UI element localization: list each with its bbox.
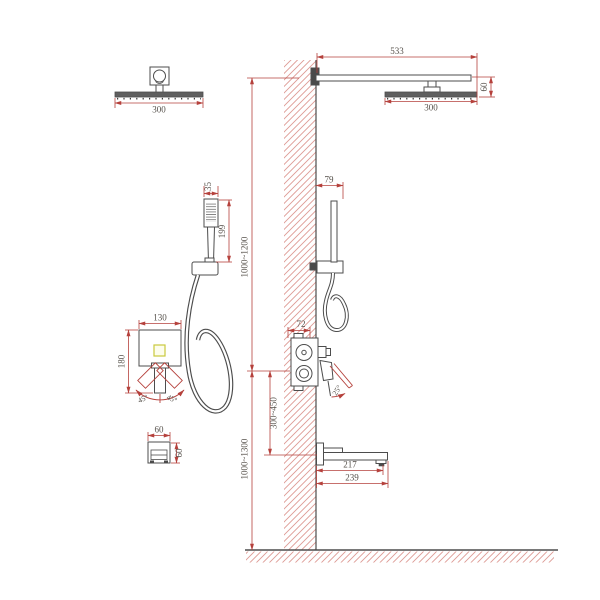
outlet-foot-left xyxy=(150,461,154,464)
hand-shower-wand-side xyxy=(331,201,337,262)
wall-hatch xyxy=(284,60,316,550)
shower-holder xyxy=(192,262,218,275)
dim-outlet-height: 60 xyxy=(174,448,184,458)
shower-installation-diagram: 300 533 60 300 35 xyxy=(0,0,600,600)
floor-section xyxy=(245,550,558,563)
head-connector-base xyxy=(424,87,440,92)
dim-arm-above-mixer: 1000~1200 xyxy=(240,236,250,277)
lever-side xyxy=(320,361,333,381)
mixer-side-view: 25° 72 xyxy=(288,319,353,397)
dim-rain-head-front-width: 300 xyxy=(152,105,166,115)
lever-tip-line xyxy=(328,381,331,396)
floor-hatch xyxy=(246,552,554,563)
dim-swing-right: 45° xyxy=(165,392,178,404)
wall-section xyxy=(284,60,316,550)
dim-head-drop: 60 xyxy=(479,82,489,92)
hose-inner xyxy=(187,275,231,411)
shower-head-bar xyxy=(115,92,203,97)
technical-drawing-canvas: 300 533 60 300 35 xyxy=(0,0,600,600)
dim-hand-wall-offset: 79 xyxy=(325,175,335,185)
hand-shower-front-view: 35 199 xyxy=(187,182,232,412)
hand-shower-handle xyxy=(208,227,215,262)
dim-arm-length: 533 xyxy=(390,46,404,56)
dim-hand-length: 199 xyxy=(217,224,227,238)
spray-grille xyxy=(206,202,216,222)
dim-recess-depth: 72 xyxy=(297,319,306,329)
mixer-front-view: 45° 45° 130 180 xyxy=(117,313,185,405)
dim-rain-head-side-width: 300 xyxy=(424,103,438,113)
dim-swing-left: 45° xyxy=(136,392,149,404)
diverter-knob-tip xyxy=(326,349,331,356)
dim-spout-reach: 217 xyxy=(343,460,357,470)
shower-head-bar-side xyxy=(385,92,477,97)
arm-socket-circle xyxy=(154,70,166,82)
dim-outlet-width: 60 xyxy=(155,425,165,435)
valve-port-top-center xyxy=(302,350,306,354)
dim-mixer-above-floor: 1000~1300 xyxy=(240,438,250,479)
mixer-handle xyxy=(155,368,166,393)
valve-port-bottom-center xyxy=(300,369,309,378)
dim-spout-total: 239 xyxy=(345,473,359,483)
spout-outlet xyxy=(376,460,386,464)
holder-wall-plug xyxy=(310,263,317,270)
rain-shower-side-view: 533 60 300 xyxy=(311,46,495,113)
outlet-foot-right xyxy=(164,461,168,464)
shower-arm xyxy=(316,75,471,81)
diverter-knob-side xyxy=(318,347,326,358)
dim-plate-width: 130 xyxy=(153,313,167,323)
spout-wall-flange xyxy=(317,443,324,465)
dim-mixer-above-spout: 300~450 xyxy=(269,397,279,429)
dim-hand-head-width: 35 xyxy=(203,182,213,192)
head-connector-top xyxy=(428,81,436,87)
dim-plate-height: 180 xyxy=(117,354,127,368)
mixer-tab-bottom xyxy=(294,386,303,391)
mixer-tab-top xyxy=(294,334,303,339)
diverter-button xyxy=(154,345,165,356)
tub-spout-side-view: 217 239 xyxy=(317,443,389,488)
holder-side xyxy=(317,261,343,273)
wall-outlet-front-view: 60 60 xyxy=(148,425,184,464)
rain-shower-front-view: 300 xyxy=(115,67,203,115)
